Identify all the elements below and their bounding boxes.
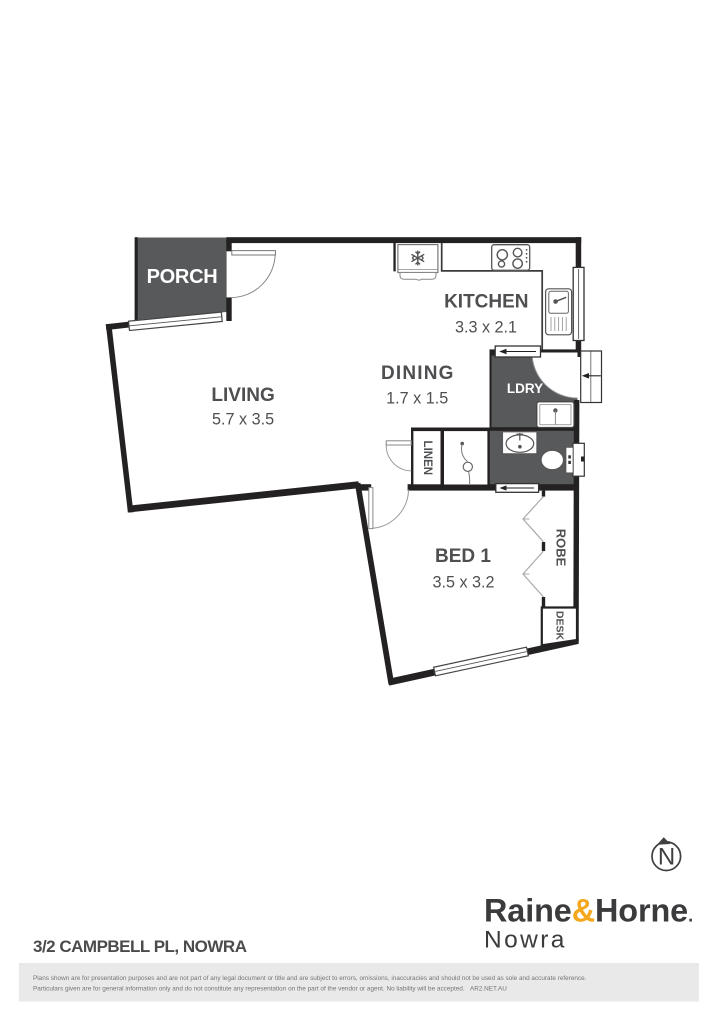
svg-text:N: N	[658, 844, 675, 871]
svg-text:KITCHEN: KITCHEN	[444, 292, 528, 313]
svg-text:DINING: DINING	[381, 363, 455, 384]
svg-text:Raine&Horne.: Raine&Horne.	[484, 893, 693, 929]
svg-text:Nowra: Nowra	[484, 927, 567, 954]
svg-text:PORCH: PORCH	[147, 266, 218, 288]
svg-text:LDRY: LDRY	[507, 381, 543, 396]
svg-text:LIVING: LIVING	[211, 385, 274, 406]
svg-text:3/2 CAMPBELL PL, NOWRA: 3/2 CAMPBELL PL, NOWRA	[33, 937, 247, 956]
svg-text:Plans shown are for presentati: Plans shown are for presentation purpose…	[33, 975, 587, 982]
svg-text:DESK: DESK	[554, 611, 566, 641]
svg-text:Particulars given are for gene: Particulars given are for general inform…	[33, 986, 507, 993]
svg-text:ROBE: ROBE	[554, 529, 569, 567]
svg-text:1.7 x 1.5: 1.7 x 1.5	[386, 390, 448, 408]
svg-text:3.3 x 2.1: 3.3 x 2.1	[455, 319, 517, 337]
svg-text:3.5 x 3.2: 3.5 x 3.2	[432, 574, 494, 592]
svg-text:BED 1: BED 1	[435, 546, 491, 567]
svg-text:5.7 x 3.5: 5.7 x 3.5	[212, 411, 274, 429]
svg-text:LINEN: LINEN	[421, 441, 433, 476]
